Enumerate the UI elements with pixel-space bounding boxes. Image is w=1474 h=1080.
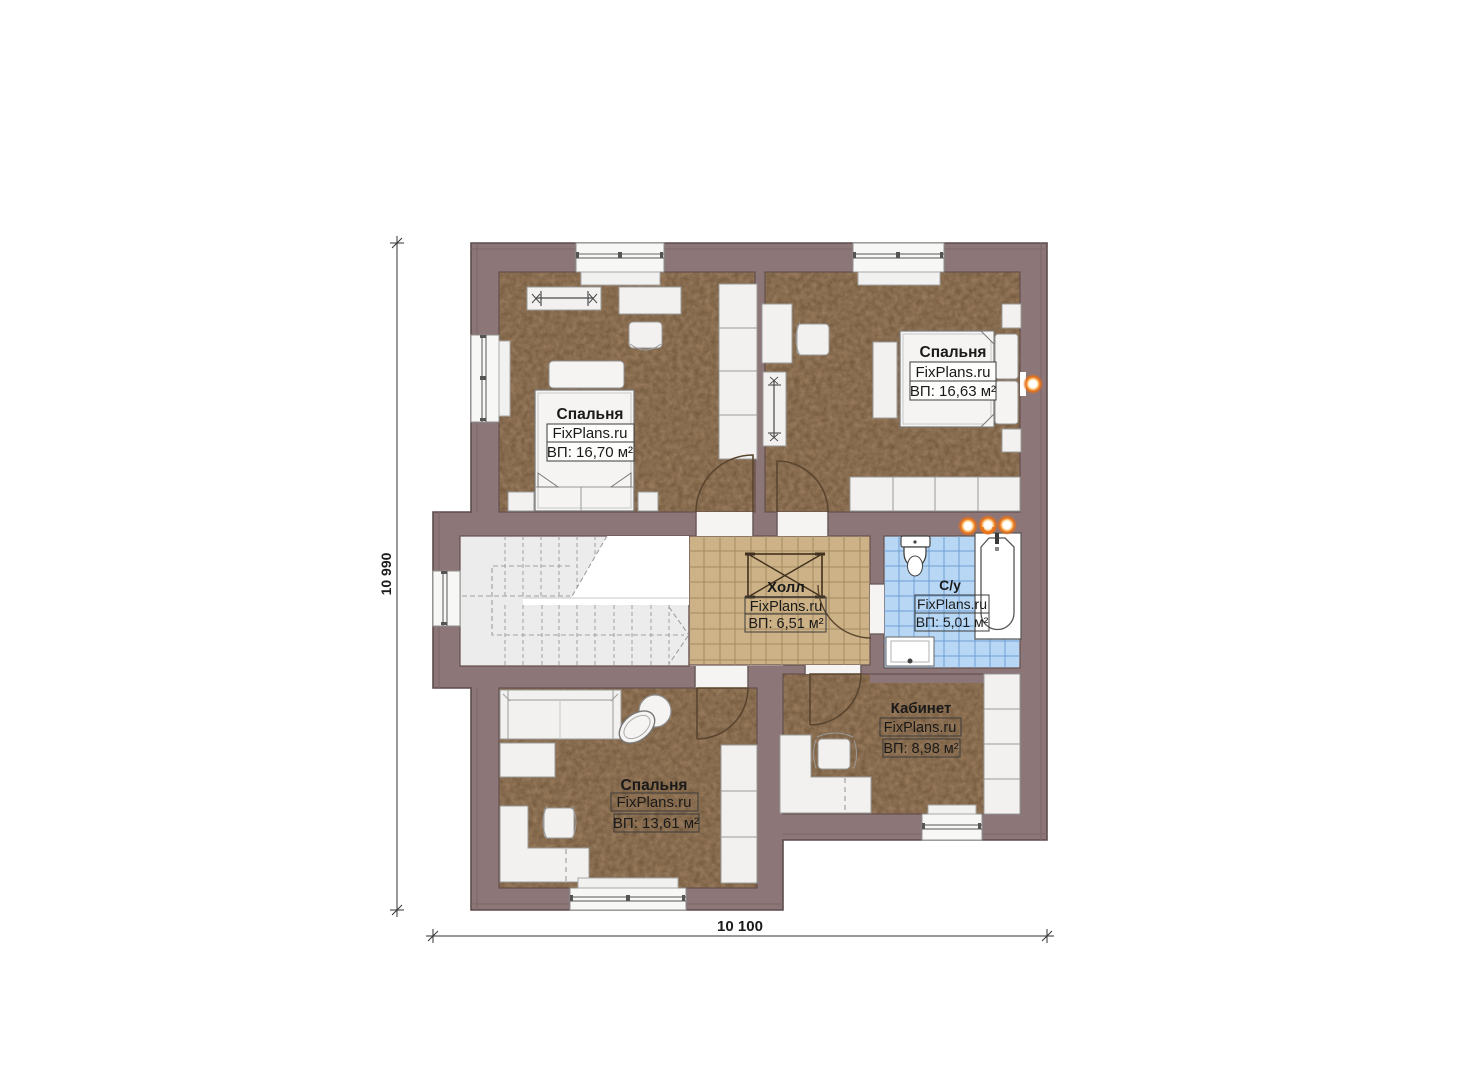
svg-text:Кабинет: Кабинет xyxy=(891,700,952,717)
svg-text:FixPlans.ru: FixPlans.ru xyxy=(616,794,691,811)
svg-text:ВП: 8,98 м²: ВП: 8,98 м² xyxy=(883,741,958,757)
svg-text:FixPlans.ru: FixPlans.ru xyxy=(750,599,823,615)
svg-text:FixPlans.ru: FixPlans.ru xyxy=(917,596,987,612)
svg-text:ВП: 6,51 м²: ВП: 6,51 м² xyxy=(748,616,823,632)
svg-text:С/у: С/у xyxy=(939,577,961,593)
svg-text:Спальня: Спальня xyxy=(920,344,987,361)
svg-text:Спальня: Спальня xyxy=(621,777,688,794)
svg-text:FixPlans.ru: FixPlans.ru xyxy=(915,364,990,381)
svg-text:10 100: 10 100 xyxy=(717,918,763,935)
svg-text:ВП: 16,63 м²: ВП: 16,63 м² xyxy=(910,383,996,400)
svg-text:Спальня: Спальня xyxy=(557,406,624,423)
svg-text:FixPlans.ru: FixPlans.ru xyxy=(552,425,627,442)
svg-text:10 990: 10 990 xyxy=(378,552,394,595)
svg-text:ВП: 5,01 м²: ВП: 5,01 м² xyxy=(916,614,989,630)
svg-text:Холл: Холл xyxy=(767,579,805,596)
svg-text:FixPlans.ru: FixPlans.ru xyxy=(884,720,957,736)
svg-text:ВП: 13,61 м²: ВП: 13,61 м² xyxy=(613,815,699,832)
svg-text:ВП: 16,70 м²: ВП: 16,70 м² xyxy=(547,444,633,461)
